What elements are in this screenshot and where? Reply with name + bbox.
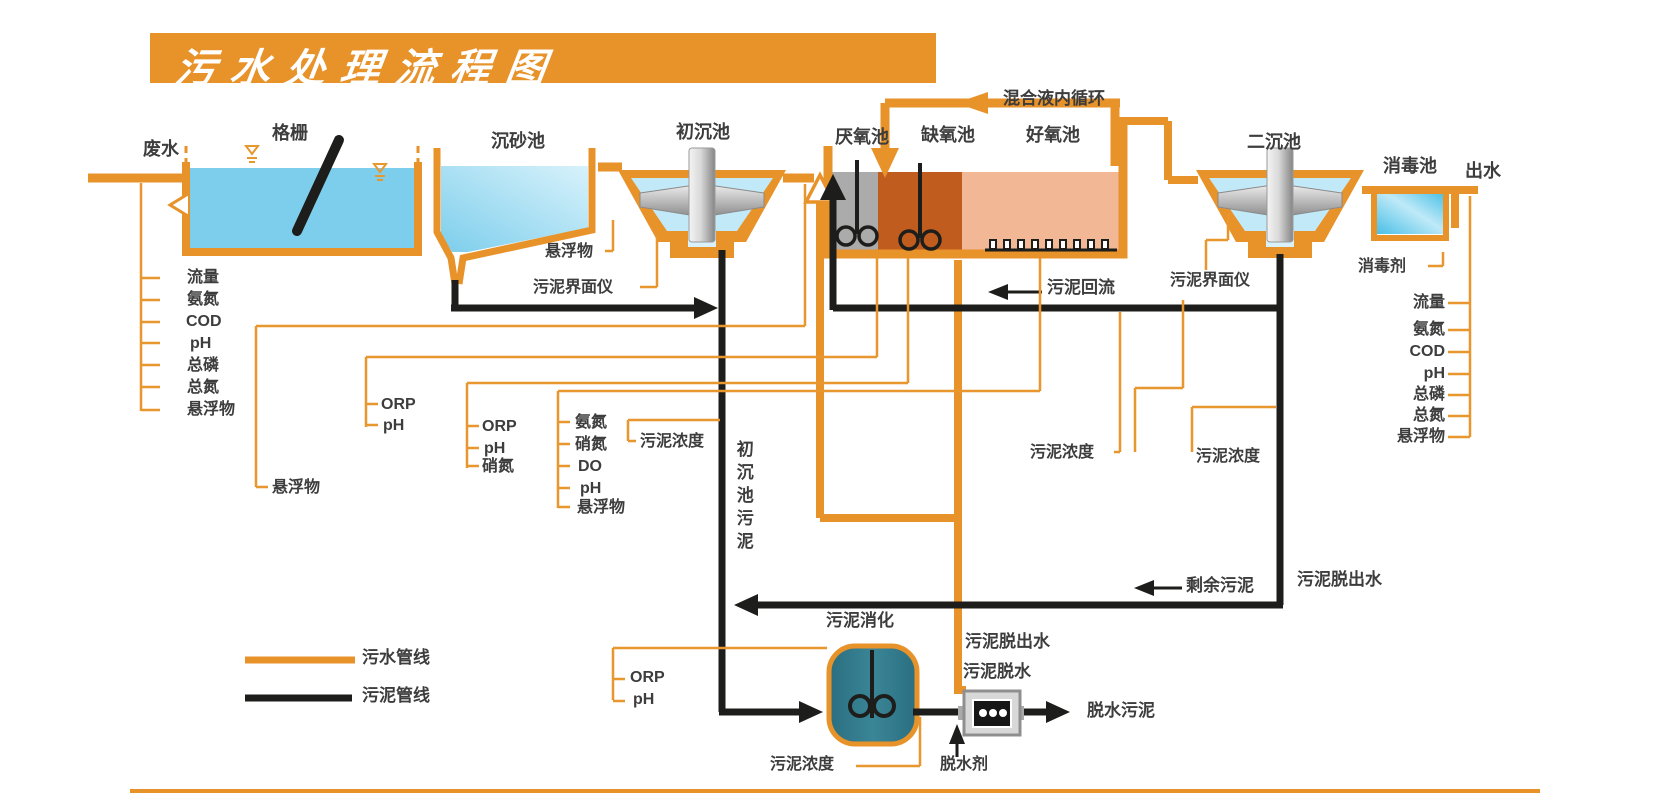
label-return-sludge-conc: 污泥浓度	[1030, 444, 1094, 462]
label-internal-recycle: 混合液内循环	[1003, 90, 1105, 109]
digester-param: ORP	[630, 669, 665, 687]
label-screen-ss: 悬浮物	[272, 479, 320, 497]
label-sludge-dewatering: 污泥脱水	[963, 663, 1031, 682]
effluent-param: 总氮	[1345, 407, 1445, 425]
effluent-param: 总磷	[1345, 386, 1445, 404]
label-effluent: 出水	[1465, 162, 1501, 182]
anoxic-param: 硝氮	[482, 458, 514, 476]
sensor-lines	[141, 183, 1470, 766]
anoxic-param: pH	[484, 440, 505, 458]
label-primary-sludge: 初沉池污泥	[733, 440, 752, 555]
primary-clarifier-tank	[618, 148, 786, 258]
label-excess-sludge-conc: 污泥浓度	[1196, 448, 1260, 466]
influent-param: 总氮	[187, 379, 219, 397]
legend-swatches	[245, 660, 355, 698]
label-filtrate-right: 污泥脱出水	[1297, 571, 1382, 590]
label-excess-sludge: 剩余污泥	[1186, 577, 1254, 596]
influent-param: pH	[190, 335, 211, 353]
label-disinfection-tank: 消毒池	[1383, 157, 1437, 177]
label-influent: 废水	[143, 140, 179, 160]
label-dewatering-agent: 脱水剂	[940, 756, 988, 774]
label-sludge-digester: 污泥消化	[826, 612, 894, 631]
secondary-clarifier-tank	[1196, 148, 1364, 258]
legend-water-line: 污水管线	[362, 649, 430, 668]
dewatering-machine-icon	[958, 691, 1024, 735]
effluent-param: 氨氮	[1345, 321, 1445, 339]
label-anoxic-tank: 缺氧池	[921, 126, 975, 146]
primary-effluent-param: ORP	[381, 396, 416, 414]
bar-screen-channel	[170, 146, 418, 252]
influent-param: 流量	[187, 269, 219, 287]
process-flow-diagram: 污水处理流程图 废水 格栅 沉砂池 初沉池 厌氧池 缺氧池 好氧池 二沉池 消毒…	[0, 0, 1654, 805]
sludge-pipes	[451, 198, 1283, 712]
aerobic-param: DO	[578, 458, 602, 476]
digester-param: pH	[633, 691, 654, 709]
effluent-param: 流量	[1345, 294, 1445, 312]
influent-param: COD	[186, 313, 222, 331]
label-primary-interface-meter: 污泥界面仪	[533, 279, 613, 297]
disinfection-tank	[1374, 188, 1446, 238]
effluent-param: pH	[1345, 365, 1445, 383]
label-disinfectant: 消毒剂	[1358, 258, 1406, 276]
aerobic-param: 硝氮	[575, 436, 607, 454]
page-title: 污水处理流程图	[172, 36, 565, 94]
label-bar-screen: 格栅	[272, 124, 308, 144]
label-filtrate-center: 污泥脱出水	[965, 633, 1050, 652]
sludge-digester-tank	[829, 646, 917, 744]
label-secondary-interface-meter: 污泥界面仪	[1170, 272, 1250, 290]
influent-param: 悬浮物	[187, 401, 235, 419]
label-aerobic-tank: 好氧池	[1026, 126, 1080, 146]
influent-param: 总磷	[187, 357, 219, 375]
label-digester-sludge-conc: 污泥浓度	[770, 756, 834, 774]
label-anaerobic-tank: 厌氧池	[835, 128, 889, 148]
anoxic-param: ORP	[482, 418, 517, 436]
aerobic-param: 悬浮物	[577, 499, 625, 517]
effluent-param: COD	[1345, 343, 1445, 361]
label-primary-sludge-conc: 污泥浓度	[640, 433, 704, 451]
label-primary-clarifier: 初沉池	[676, 123, 730, 143]
influent-param: 氨氮	[187, 291, 219, 309]
label-secondary-clarifier: 二沉池	[1247, 133, 1301, 153]
annotation-arrows	[957, 292, 1182, 757]
label-grit-ss: 悬浮物	[545, 243, 593, 261]
aerobic-param: pH	[580, 480, 601, 498]
grit-chamber-tank	[437, 148, 592, 284]
legend-sludge-line: 污泥管线	[362, 687, 430, 706]
primary-effluent-param: pH	[383, 417, 404, 435]
aerobic-param: 氨氮	[575, 414, 607, 432]
effluent-param: 悬浮物	[1345, 428, 1445, 446]
label-grit-chamber: 沉砂池	[491, 132, 545, 152]
label-dewatered-sludge: 脱水污泥	[1087, 702, 1155, 721]
label-sludge-return: 污泥回流	[1047, 279, 1115, 298]
